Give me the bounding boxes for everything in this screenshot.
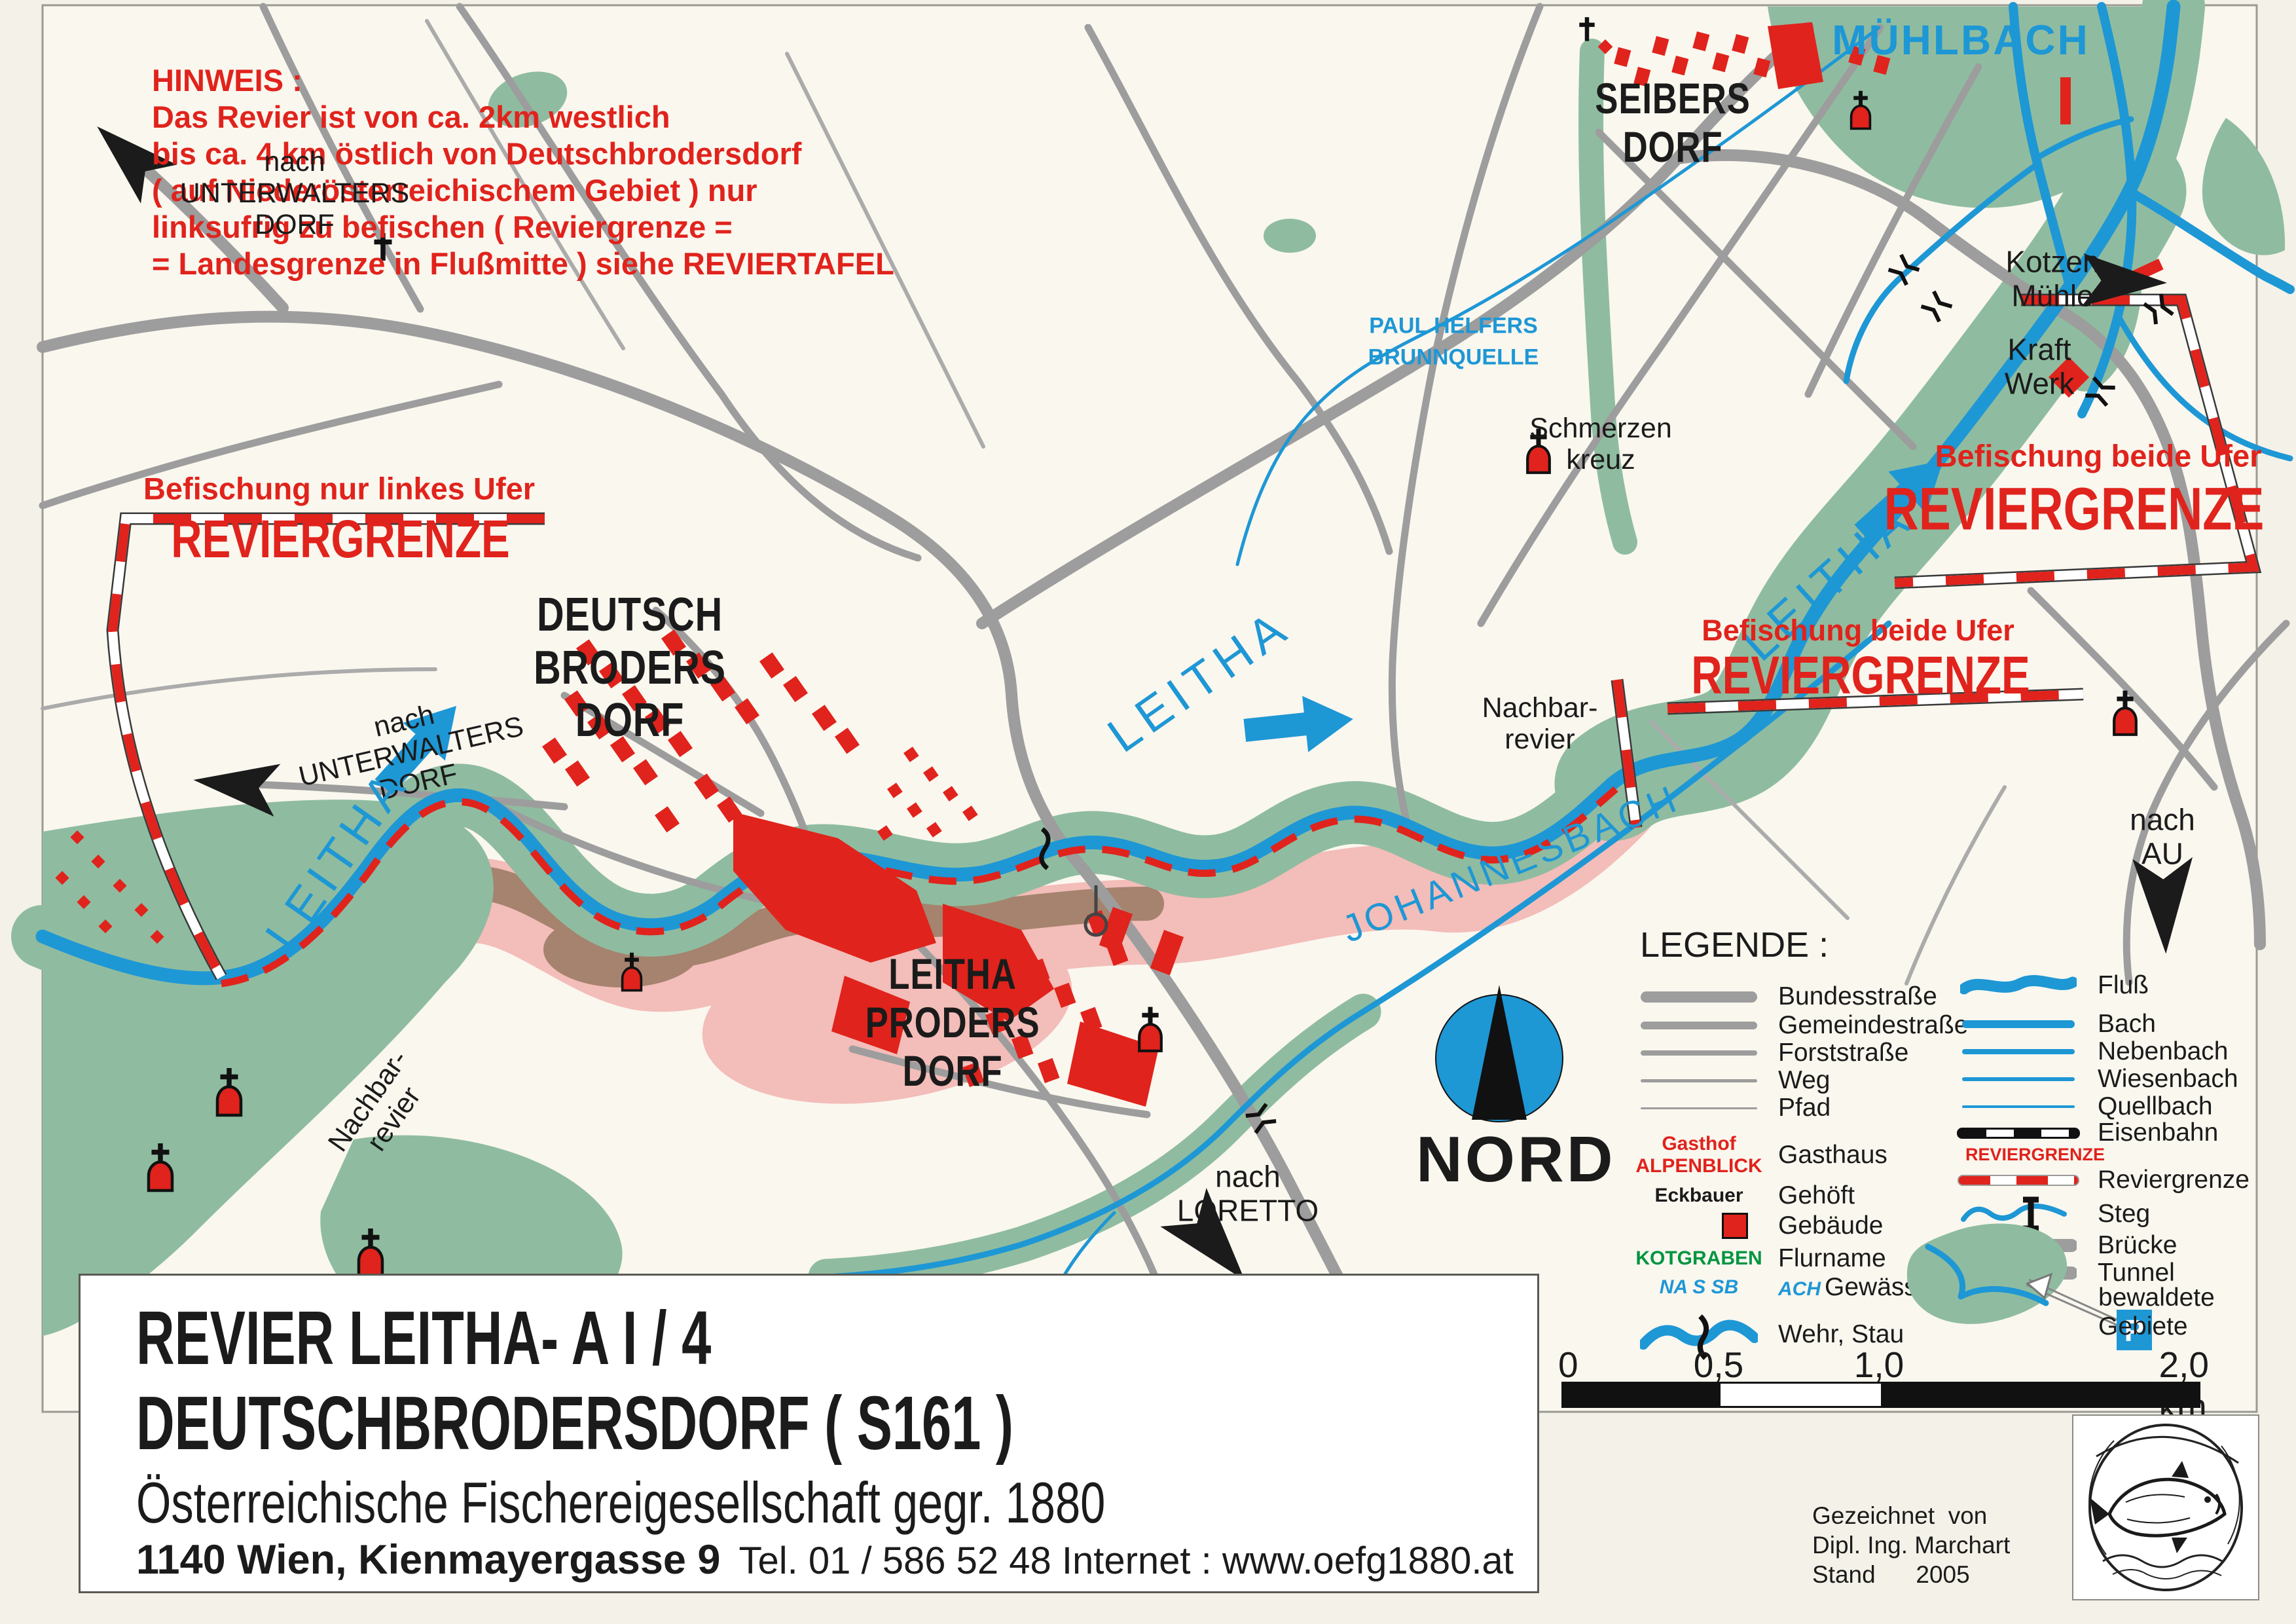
gebaeude-icon [1722, 1213, 1748, 1239]
legend-row: Quellbach [1958, 1092, 2213, 1121]
scale-bar-segments [1561, 1382, 2200, 1408]
label-seibersdorf: SEIBERSDORF [1576, 75, 1770, 172]
title-block: REVIER LEITHA- A I / 4 DEUTSCHBRODERSDOR… [79, 1274, 1539, 1593]
flurname-sample: KOTGRABEN [1638, 1247, 1760, 1270]
legend: LEGENDE : Bundesstraße Gemeindestraße Fo… [1630, 925, 2291, 1370]
label-nach-unterwaltersdorf-1: nach UNTERWALTERS DORF [180, 146, 409, 240]
nebenbach-line-icon [1962, 1049, 2075, 1054]
gehoeft-sample: Eckbauer [1638, 1185, 1760, 1207]
quellbach-line-icon [1962, 1105, 2075, 1108]
legend-row: Fluß [1958, 970, 2149, 1001]
chapel-icon [149, 1143, 172, 1190]
hinweis-line: Das Revier ist von ca. 2km westlich [152, 99, 894, 136]
chapel-icon [1851, 91, 1870, 129]
label-befischung-links: Befischung nur linkes Ufer [143, 472, 535, 507]
label-nach-au: nachAU [2130, 803, 2195, 870]
gewaesser-sample: NA S SB [1638, 1276, 1760, 1299]
legend-row: Eckbauer Gehöft [1638, 1181, 1855, 1210]
legend-row: Weg [1638, 1066, 1831, 1095]
revier-subtitle: DEUTSCHBRODERSDORF ( S161 ) [136, 1379, 1013, 1467]
legend-row: Bundesstraße [1638, 982, 1937, 1011]
label-schmerzenkreuz: Schmerzenkreuz [1529, 413, 1671, 475]
weg-line-icon [1641, 1079, 1757, 1082]
legend-row: KOTGRABEN Flurname [1638, 1244, 1886, 1273]
contact: Tel. 01 / 586 52 48 Internet : www.oefg1… [738, 1540, 1513, 1582]
map-canvas: HINWEIS : Das Revier ist von ca. 2km wes… [0, 0, 2296, 1624]
label-paul-helfers: PAUL HELFERSBRUNNQUELLE [1368, 310, 1539, 373]
legend-row: Pfad [1638, 1094, 1831, 1122]
chapel-icon [1139, 1007, 1161, 1051]
label-kotzenmuehle: KotzenMühle [2005, 245, 2099, 312]
chapel-icon [359, 1228, 382, 1276]
legend-row: Nebenbach [1958, 1037, 2229, 1066]
gasthaus-sample: GasthofALPENBLICK [1638, 1133, 1760, 1177]
wiesenbach-line-icon [1962, 1077, 2075, 1081]
scale-bar: 0 0,5 1,0 2,0 km [1558, 1344, 2272, 1409]
legend-row: Gebäude [1638, 1211, 1883, 1240]
label-leithaprodersdorf: LEITHAPRODERSDORF [843, 950, 1061, 1096]
compass: NORD [1416, 981, 1583, 1196]
legend-row: Wiesenbach [1958, 1065, 2238, 1094]
organisation: Österreichische Fischereigesellschaft ge… [136, 1469, 1105, 1536]
scale-tick: 0,5 [1694, 1344, 1743, 1386]
reviergrenze-line-icon [1958, 1175, 2079, 1186]
chapel-icon [217, 1068, 241, 1115]
legend-row: Forststraße [1638, 1039, 1908, 1067]
chapel-icon [623, 953, 642, 991]
legend-label-gebiete: Gebiete [2098, 1312, 2188, 1341]
revier-title: REVIER LEITHA- A I / 4 [136, 1294, 711, 1382]
label-nach-loretto: nachLORETTO [1177, 1160, 1319, 1227]
legend-row: Bach [1958, 1010, 2156, 1039]
label-reviergrenze-east-2: REVIERGRENZE [1649, 646, 2073, 706]
address: 1140 Wien, Kienmayergasse 9 [136, 1537, 720, 1583]
eisenbahn-line-icon [1957, 1128, 2080, 1139]
hinweis-line: = Landesgrenze in Flußmitte ) siehe REVI… [152, 246, 894, 282]
legend-row: Reviergrenze [1958, 1166, 2250, 1194]
label-reviergrenze-east-1: REVIERGRENZE [1836, 475, 2296, 543]
label-befischung-beide-2: Befischung beide Ufer [1702, 614, 2014, 647]
legend-title: LEGENDE : [1640, 925, 1829, 965]
scale-tick: 0 [1558, 1344, 1578, 1386]
label-kraftwerk: KraftWerk [2005, 333, 2075, 400]
bundesstrasse-line-icon [1641, 991, 1757, 1003]
label-befischung-beide-1: Befischung beide Ufer [1935, 439, 2262, 474]
forststrasse-line-icon [1641, 1050, 1757, 1056]
fish-logo [2072, 1414, 2259, 1600]
scale-tick: 1,0 [1854, 1344, 1904, 1386]
compass-icon [1416, 981, 1583, 1132]
legend-label-bewaldete: bewaldete [2098, 1283, 2215, 1312]
reviergrenze-tag: REVIERGRENZE [1965, 1145, 2087, 1165]
gemeindestrasse-line-icon [1641, 1022, 1757, 1029]
legend-row: Eisenbahn [1958, 1118, 2218, 1147]
label-muehlbach: MÜHLBACH [1832, 17, 2090, 64]
label-nachbarrevier-east: Nachbar-revier [1482, 692, 1598, 755]
label-deutschbrodersdorf: DEUTSCHBRODERSDORF [509, 589, 750, 747]
fluss-icon [1960, 970, 2077, 1001]
legend-row: GasthofALPENBLICK Gasthaus [1638, 1133, 1887, 1177]
hinweis-title: HINWEIS : [152, 62, 894, 99]
chapel-icon [2114, 691, 2136, 735]
bach-line-icon [1962, 1020, 2075, 1028]
address-line: 1140 Wien, Kienmayergasse 9Tel. 01 / 586… [136, 1536, 1514, 1583]
pfad-line-icon [1641, 1107, 1757, 1109]
credits: Gezeichnet von Dipl. Ing. Marchart Stand… [1812, 1501, 2010, 1589]
legend-row: Gemeindestraße [1638, 1011, 1968, 1040]
label-reviergrenze-west: REVIERGRENZE [129, 509, 553, 570]
compass-label: NORD [1416, 1122, 1583, 1196]
